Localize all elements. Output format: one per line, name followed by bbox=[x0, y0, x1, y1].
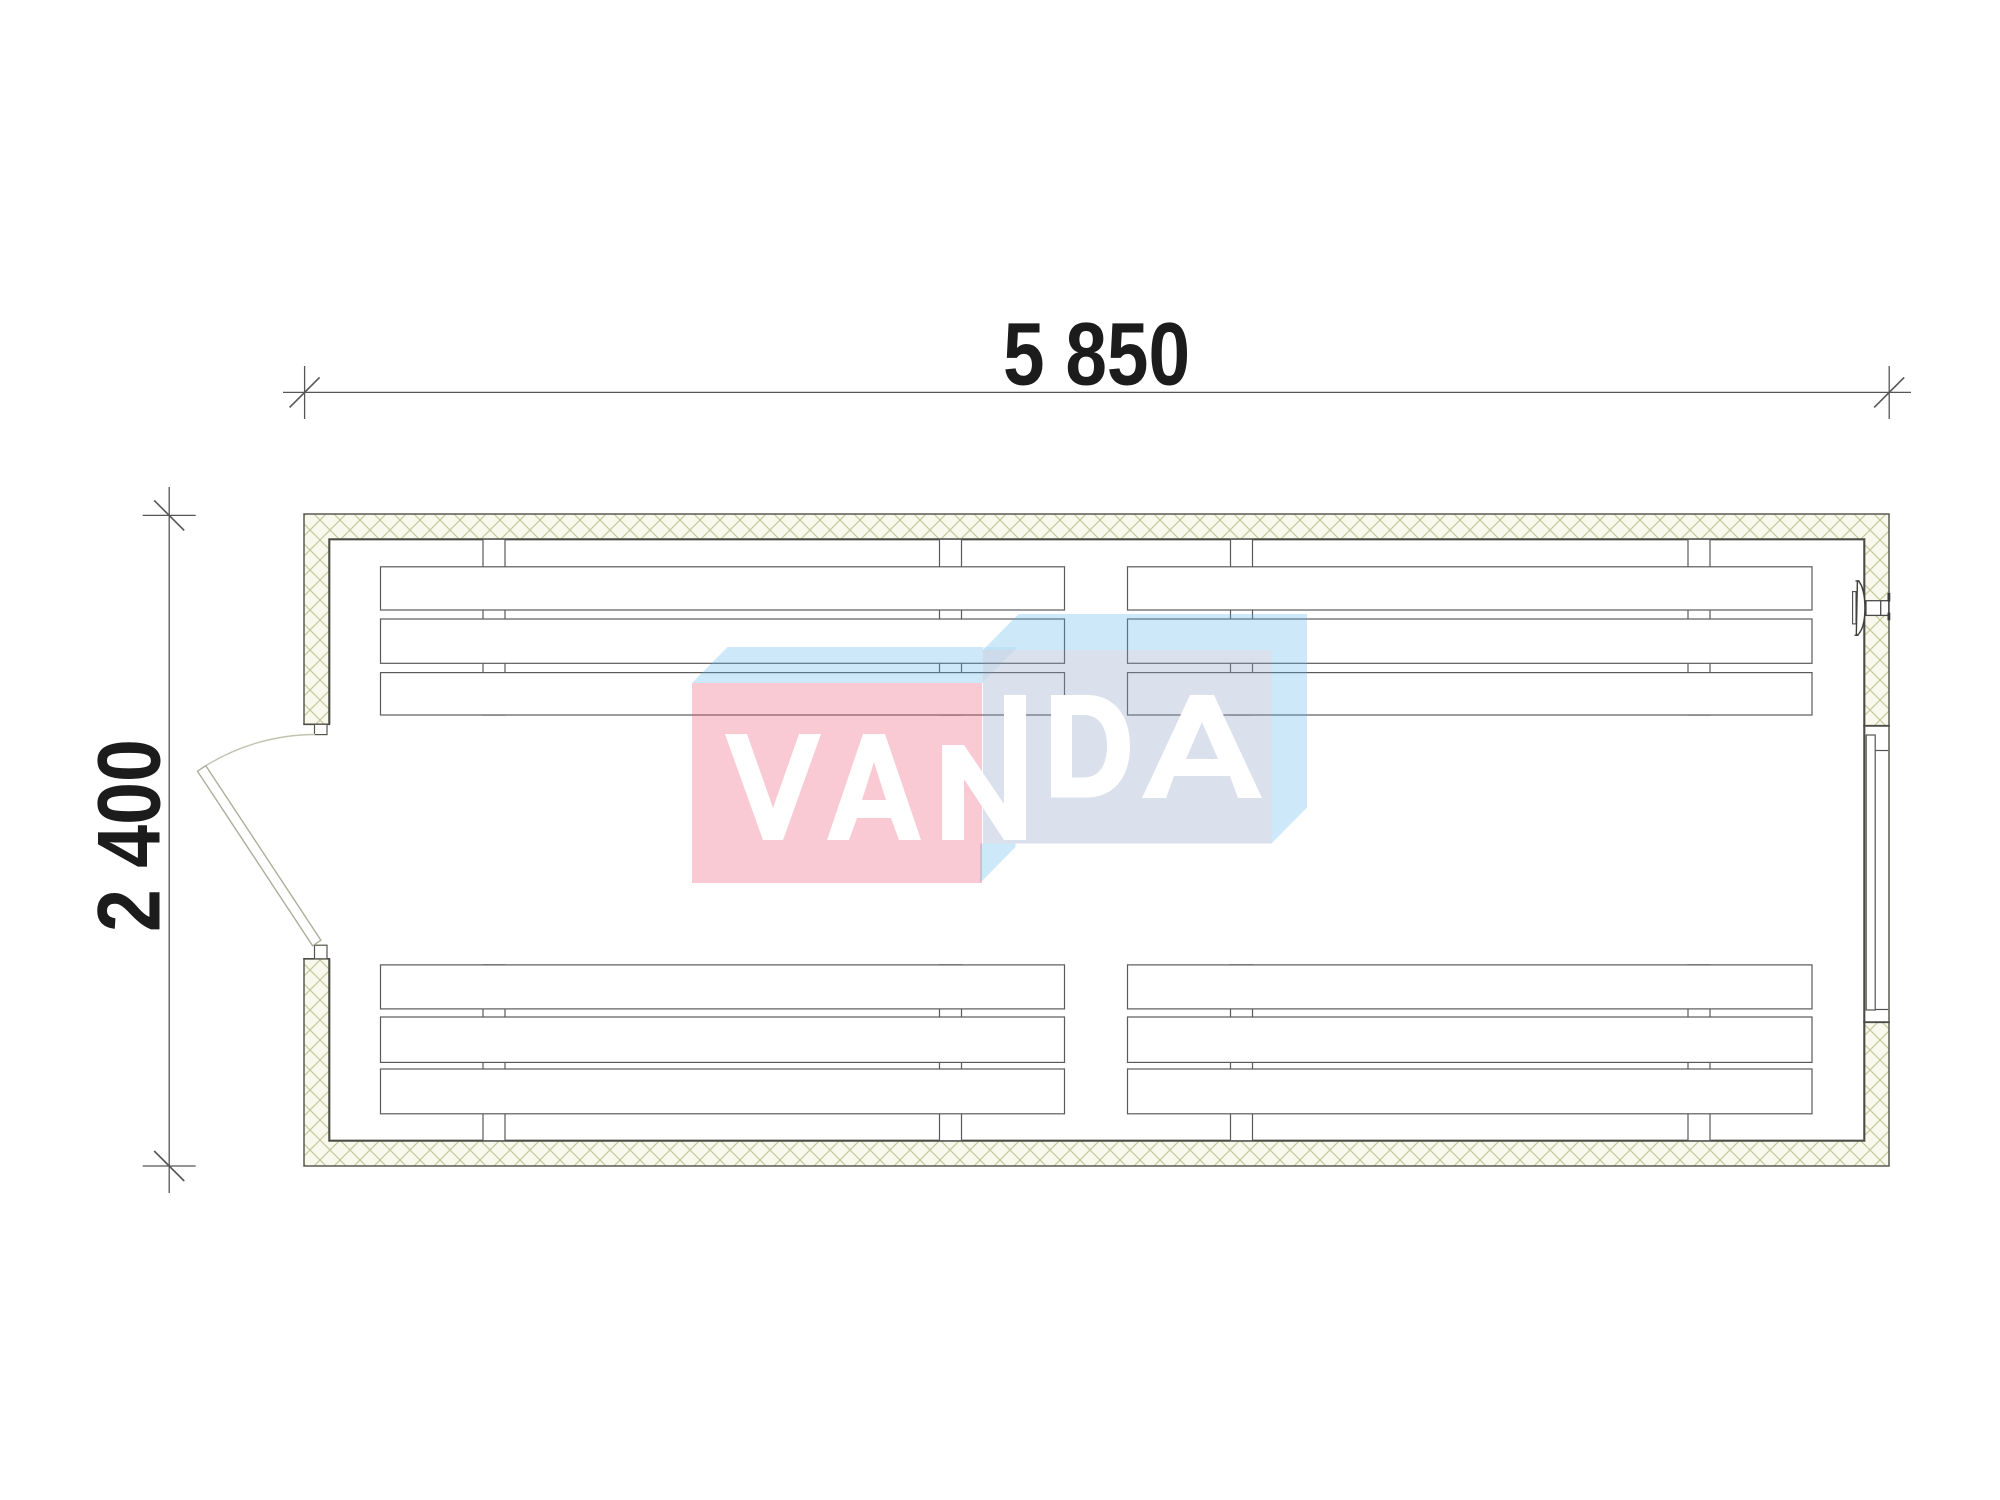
svg-text:2 400: 2 400 bbox=[79, 739, 178, 932]
svg-text:5 850: 5 850 bbox=[1003, 305, 1190, 404]
